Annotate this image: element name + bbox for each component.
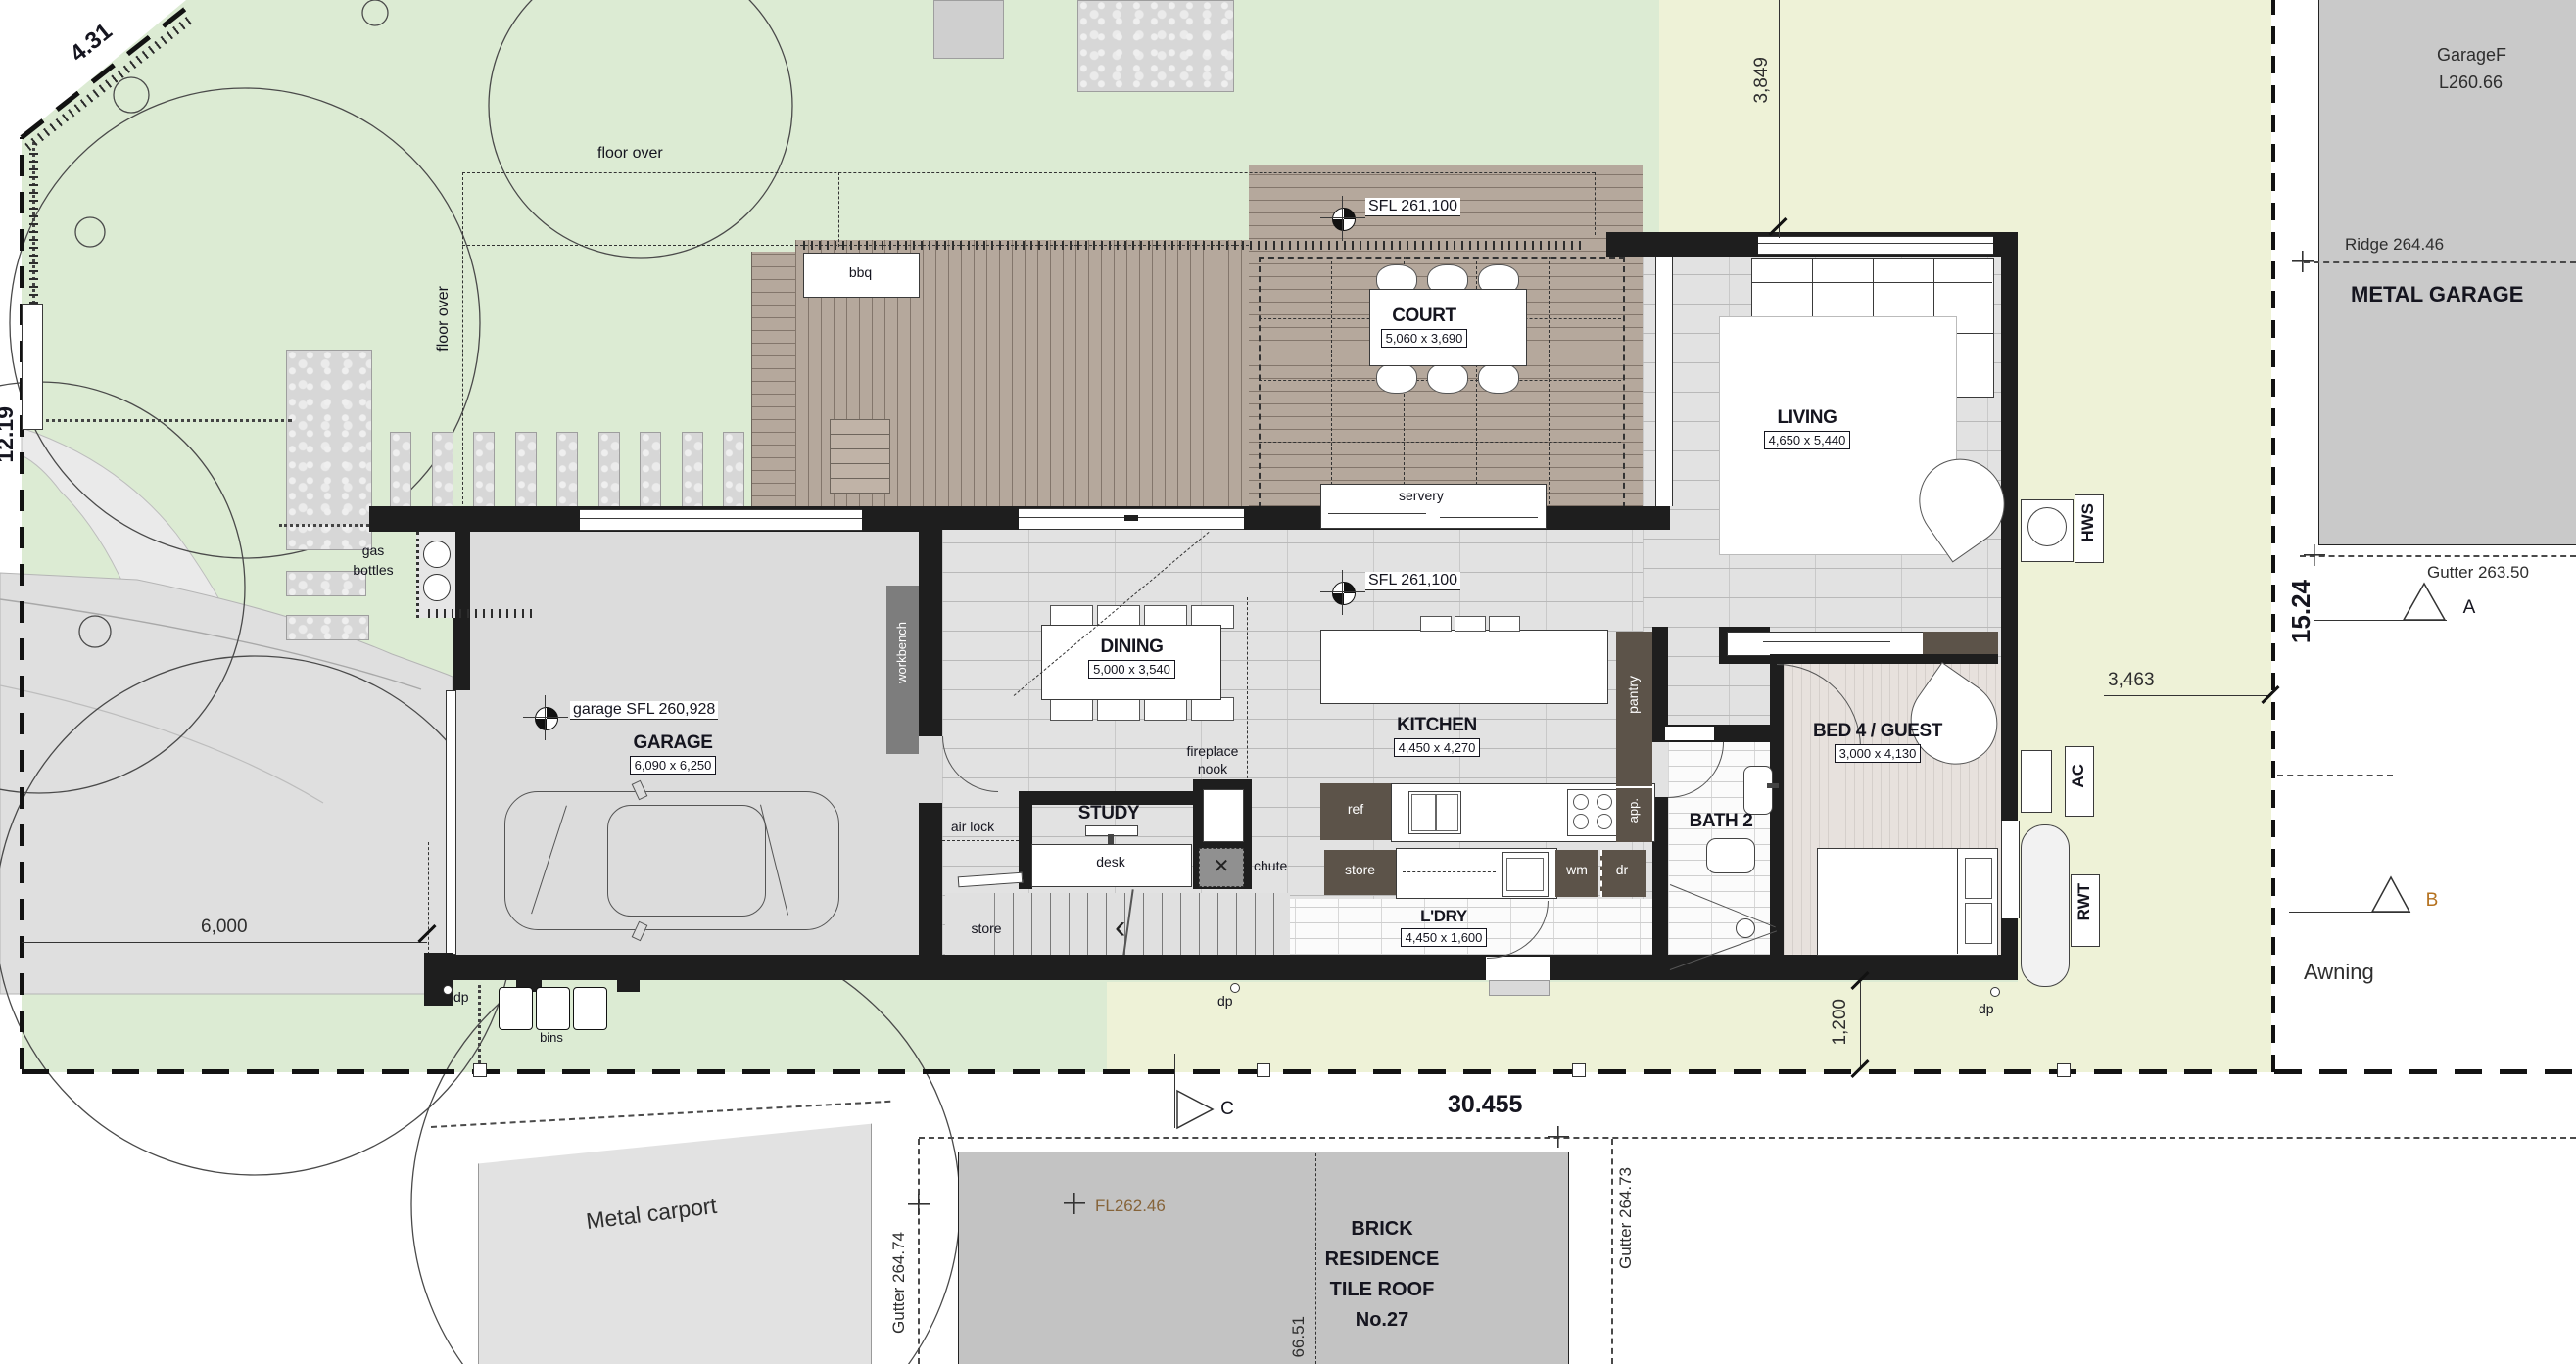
boundary-dim-west: 12.19 (0, 406, 19, 463)
awning-label: Awning (2304, 960, 2374, 985)
deck-steps (830, 419, 890, 494)
servery-label: servery (1399, 488, 1444, 503)
basin (1743, 766, 1773, 815)
boundary-dim-east: 15.24 (2286, 580, 2316, 643)
section-marker-c: C (1175, 1089, 1215, 1130)
room-bed4: BED 4 / GUEST 3,000 x 4,130 (1785, 721, 1971, 763)
wm-label: wm (1555, 862, 1598, 877)
chute-label: chute (1254, 858, 1287, 873)
living-west-glazing (1655, 257, 1673, 506)
room-dims-kitchen: 4,450 x 4,270 (1394, 738, 1481, 757)
garage-window (580, 509, 862, 531)
fence-line (478, 985, 481, 1069)
ref-label: ref (1320, 801, 1391, 817)
living-window (1758, 236, 1993, 255)
rwt-label: RWT (2075, 883, 2094, 920)
floor-over-line (462, 172, 1595, 173)
room-dining: DINING 5,000 x 3,540 (1075, 636, 1188, 679)
level-marker-garage (535, 707, 558, 730)
store-label: store (952, 920, 1021, 936)
gutter-line-west (918, 1139, 920, 1364)
boundary-dim-south: 30.455 (1448, 1091, 1522, 1119)
room-dims-living: 4,650 x 5,440 (1764, 431, 1851, 449)
floor-over-label-side: floor over (435, 286, 453, 352)
air-lock-label: air lock (948, 817, 997, 836)
boundary-west (20, 137, 24, 1069)
room-label-garage: GARAGE (609, 732, 737, 754)
room-label-living: LIVING (1751, 407, 1863, 429)
garage-door (446, 690, 456, 955)
residence-gutter-east: Gutter 264.73 (1616, 1167, 1636, 1269)
boundary-east-fence (2271, 0, 2275, 1072)
metal-garage-title: METAL GARAGE (2351, 282, 2523, 307)
room-label-study: STUDY (1060, 803, 1158, 824)
floor-plan: floor over floor over ‹ servery (0, 0, 2576, 1364)
elevation-marker-b: B (2370, 875, 2411, 914)
room-label-laundry: L'DRY (1389, 907, 1499, 926)
residence-gutter-west: Gutter 264.74 (889, 1232, 909, 1334)
ac-unit (2021, 750, 2052, 813)
metal-garage-name: GarageF (2437, 45, 2506, 66)
store2-label: store (1324, 862, 1396, 877)
rainwater-tank (2021, 824, 2070, 987)
elevation-marker-a: A (2402, 582, 2447, 622)
desk-label: desk (1031, 854, 1190, 870)
dim-north: 3,849 (1751, 57, 1773, 104)
bin (499, 987, 533, 1030)
cobble-strip (286, 615, 369, 640)
room-dims-court: 5,060 x 3,690 (1381, 329, 1468, 348)
toilet (1706, 838, 1755, 873)
garage-sfl-label: garage SFL 260,928 (570, 701, 718, 720)
metal-garage-ridge: Ridge 264.46 (2345, 235, 2444, 255)
bin (573, 987, 607, 1030)
room-dims-dining: 5,000 x 3,540 (1088, 660, 1175, 679)
fireplace-nook-label: fireplace nook (1171, 742, 1254, 777)
floor-over-label: floor over (597, 145, 663, 163)
bbq-label: bbq (803, 264, 918, 280)
gas-bottles-label: gas bottles (341, 541, 405, 580)
dim-east: 3,463 (2108, 670, 2155, 691)
dp-label: dp (1979, 1001, 1994, 1016)
bin (536, 987, 570, 1030)
room-label-dining: DINING (1075, 636, 1188, 658)
cobble-patch (286, 350, 372, 550)
fence-line (279, 524, 369, 527)
gutter-line-east (1611, 1139, 1613, 1364)
bed4-east-window (2001, 821, 2020, 918)
room-court: COURT 5,060 x 3,690 (1369, 306, 1479, 348)
dim-south-right: 1,200 (1830, 999, 1851, 1046)
room-laundry: L'DRY 4,450 x 1,600 (1389, 907, 1499, 947)
metal-garage-gutter: Gutter 263.50 (2427, 563, 2529, 583)
deck-stair-strip (751, 252, 796, 509)
cobble-patch-top (1077, 0, 1234, 92)
dp-label: dp (1217, 993, 1233, 1009)
room-dims-garage: 6,090 x 6,250 (630, 756, 717, 775)
room-living: LIVING 4,650 x 5,440 (1751, 407, 1863, 449)
stair-arrow: ‹ (1115, 909, 1125, 947)
room-garage: GARAGE 6,090 x 6,250 (609, 732, 737, 775)
paver-top (933, 0, 1004, 59)
dp-label: dp (453, 989, 469, 1005)
fireplace (1203, 789, 1244, 842)
room-kitchen: KITCHEN 4,450 x 4,270 (1379, 715, 1495, 757)
app-label: app. (1626, 798, 1641, 823)
ac-label: AC (2069, 764, 2088, 788)
dr-label: dr (1600, 862, 1644, 877)
room-label-kitchen: KITCHEN (1379, 715, 1495, 736)
dim-driveway: 6,000 (201, 917, 248, 938)
chute-box: ✕ (1199, 848, 1244, 887)
level-marker-court (1332, 208, 1356, 231)
room-label-bath2: BATH 2 (1667, 811, 1775, 832)
hws-label: HWS (2078, 503, 2098, 542)
gate (22, 304, 43, 430)
room-label-bed4: BED 4 / GUEST (1785, 721, 1971, 742)
kitchen-island (1320, 630, 1608, 704)
fence-line (39, 419, 292, 422)
bed4-robe (1923, 632, 1998, 654)
bins-label: bins (517, 1030, 586, 1045)
residence-dim: 66.51 (1289, 1316, 1309, 1358)
boundary-south (22, 1069, 2576, 1074)
main-sfl-label: SFL 261,100 (1365, 572, 1460, 590)
shower-rose (1736, 918, 1755, 938)
residence-floor-level: FL262.46 (1095, 1197, 1166, 1216)
room-label-court: COURT (1369, 306, 1479, 327)
workbench-label: workbench (894, 622, 909, 683)
court-sfl-label: SFL 261,100 (1365, 198, 1460, 216)
bed4-north-window (1727, 632, 1925, 656)
level-marker-main (1332, 582, 1356, 605)
pantry-label: pantry (1625, 676, 1641, 714)
metal-garage-level: L260.66 (2439, 72, 2503, 93)
room-dims-bed4: 3,000 x 4,130 (1835, 744, 1922, 763)
room-dims-laundry: 4,450 x 1,600 (1401, 928, 1488, 947)
